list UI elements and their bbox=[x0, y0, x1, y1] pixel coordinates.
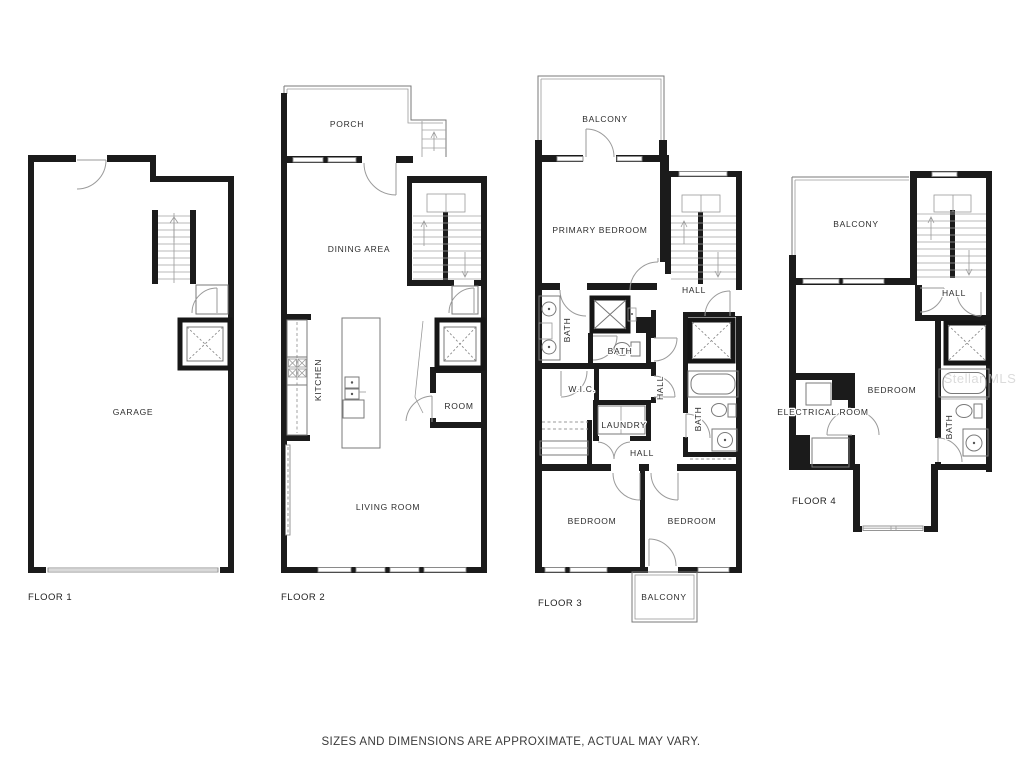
room-label-primary-bedroom: PRIMARY BEDROOM bbox=[552, 225, 647, 235]
window bbox=[617, 157, 642, 162]
window bbox=[698, 568, 729, 573]
room-label-porch: PORCH bbox=[330, 119, 364, 129]
floor1-label: FLOOR 1 bbox=[28, 592, 72, 603]
bay-window bbox=[863, 526, 923, 531]
shower-icon bbox=[592, 298, 628, 331]
page-background bbox=[0, 0, 1024, 768]
window bbox=[803, 279, 839, 284]
room-label-balcony: BALCONY bbox=[582, 114, 628, 124]
side-window bbox=[286, 445, 291, 535]
floor-plan-page: GARAGE FLOOR 1 bbox=[0, 0, 1024, 768]
stellar-mls-watermark: Stellar MLS bbox=[944, 371, 1017, 386]
room-label-bath: BATH bbox=[608, 346, 633, 356]
door-opening bbox=[362, 155, 396, 164]
window bbox=[328, 158, 356, 163]
door-opening bbox=[735, 290, 743, 316]
elevator-shaft-icon bbox=[946, 323, 988, 363]
room-label-hall: HALL bbox=[630, 448, 654, 458]
room-label-electrical-room: ELECTRICAL ROOM bbox=[777, 407, 868, 417]
floor4-label: FLOOR 4 bbox=[792, 496, 836, 507]
room-label-bedroom: BEDROOM bbox=[868, 385, 917, 395]
door-opening bbox=[560, 282, 587, 291]
room-label-garage: GARAGE bbox=[113, 407, 154, 417]
door-opening bbox=[76, 154, 107, 163]
room-label-bath: BATH bbox=[562, 318, 572, 343]
window bbox=[356, 568, 385, 573]
garage-door bbox=[48, 568, 218, 572]
window bbox=[679, 172, 727, 177]
shower-icon bbox=[690, 320, 733, 361]
elevator-shaft-icon bbox=[180, 320, 230, 368]
room-label-balcony: BALCONY bbox=[833, 219, 879, 229]
floor2-label: FLOOR 2 bbox=[281, 592, 325, 603]
floor3-label: FLOOR 3 bbox=[538, 598, 582, 609]
room-label-kitchen: KITCHEN bbox=[313, 359, 323, 401]
window bbox=[545, 568, 565, 573]
window bbox=[570, 568, 607, 573]
disclaimer-text: SIZES AND DIMENSIONS ARE APPROXIMATE, AC… bbox=[322, 736, 701, 748]
floor-plan-drawing: GARAGE FLOOR 1 bbox=[0, 0, 1024, 768]
room-label-hall: HALL bbox=[655, 376, 665, 400]
window bbox=[557, 157, 583, 162]
room-label-bath: BATH bbox=[693, 407, 703, 432]
room-label-hall: HALL bbox=[942, 288, 966, 298]
door-opening bbox=[583, 154, 616, 163]
window bbox=[932, 172, 957, 177]
room-label-bath: BATH bbox=[944, 415, 954, 440]
room-label-hall: HALL bbox=[682, 285, 706, 295]
room-label-bedroom: BEDROOM bbox=[568, 516, 617, 526]
window bbox=[390, 568, 419, 573]
elevator-shaft-icon bbox=[437, 320, 483, 368]
window bbox=[843, 279, 884, 284]
window bbox=[293, 158, 323, 163]
door-opening bbox=[648, 566, 678, 575]
room-label-living-room: LIVING ROOM bbox=[356, 502, 420, 512]
window bbox=[424, 568, 466, 573]
window bbox=[318, 568, 351, 573]
door-opening bbox=[649, 463, 677, 472]
room-label-room: ROOM bbox=[444, 401, 473, 411]
room-label-wic: W.I.C. bbox=[568, 384, 595, 394]
door-opening bbox=[611, 463, 639, 472]
room-label-balcony: BALCONY bbox=[641, 592, 687, 602]
room-label-bedroom: BEDROOM bbox=[668, 516, 717, 526]
room-label-dining-area: DINING AREA bbox=[328, 244, 391, 254]
room-label-laundry: LAUNDRY bbox=[601, 420, 646, 430]
